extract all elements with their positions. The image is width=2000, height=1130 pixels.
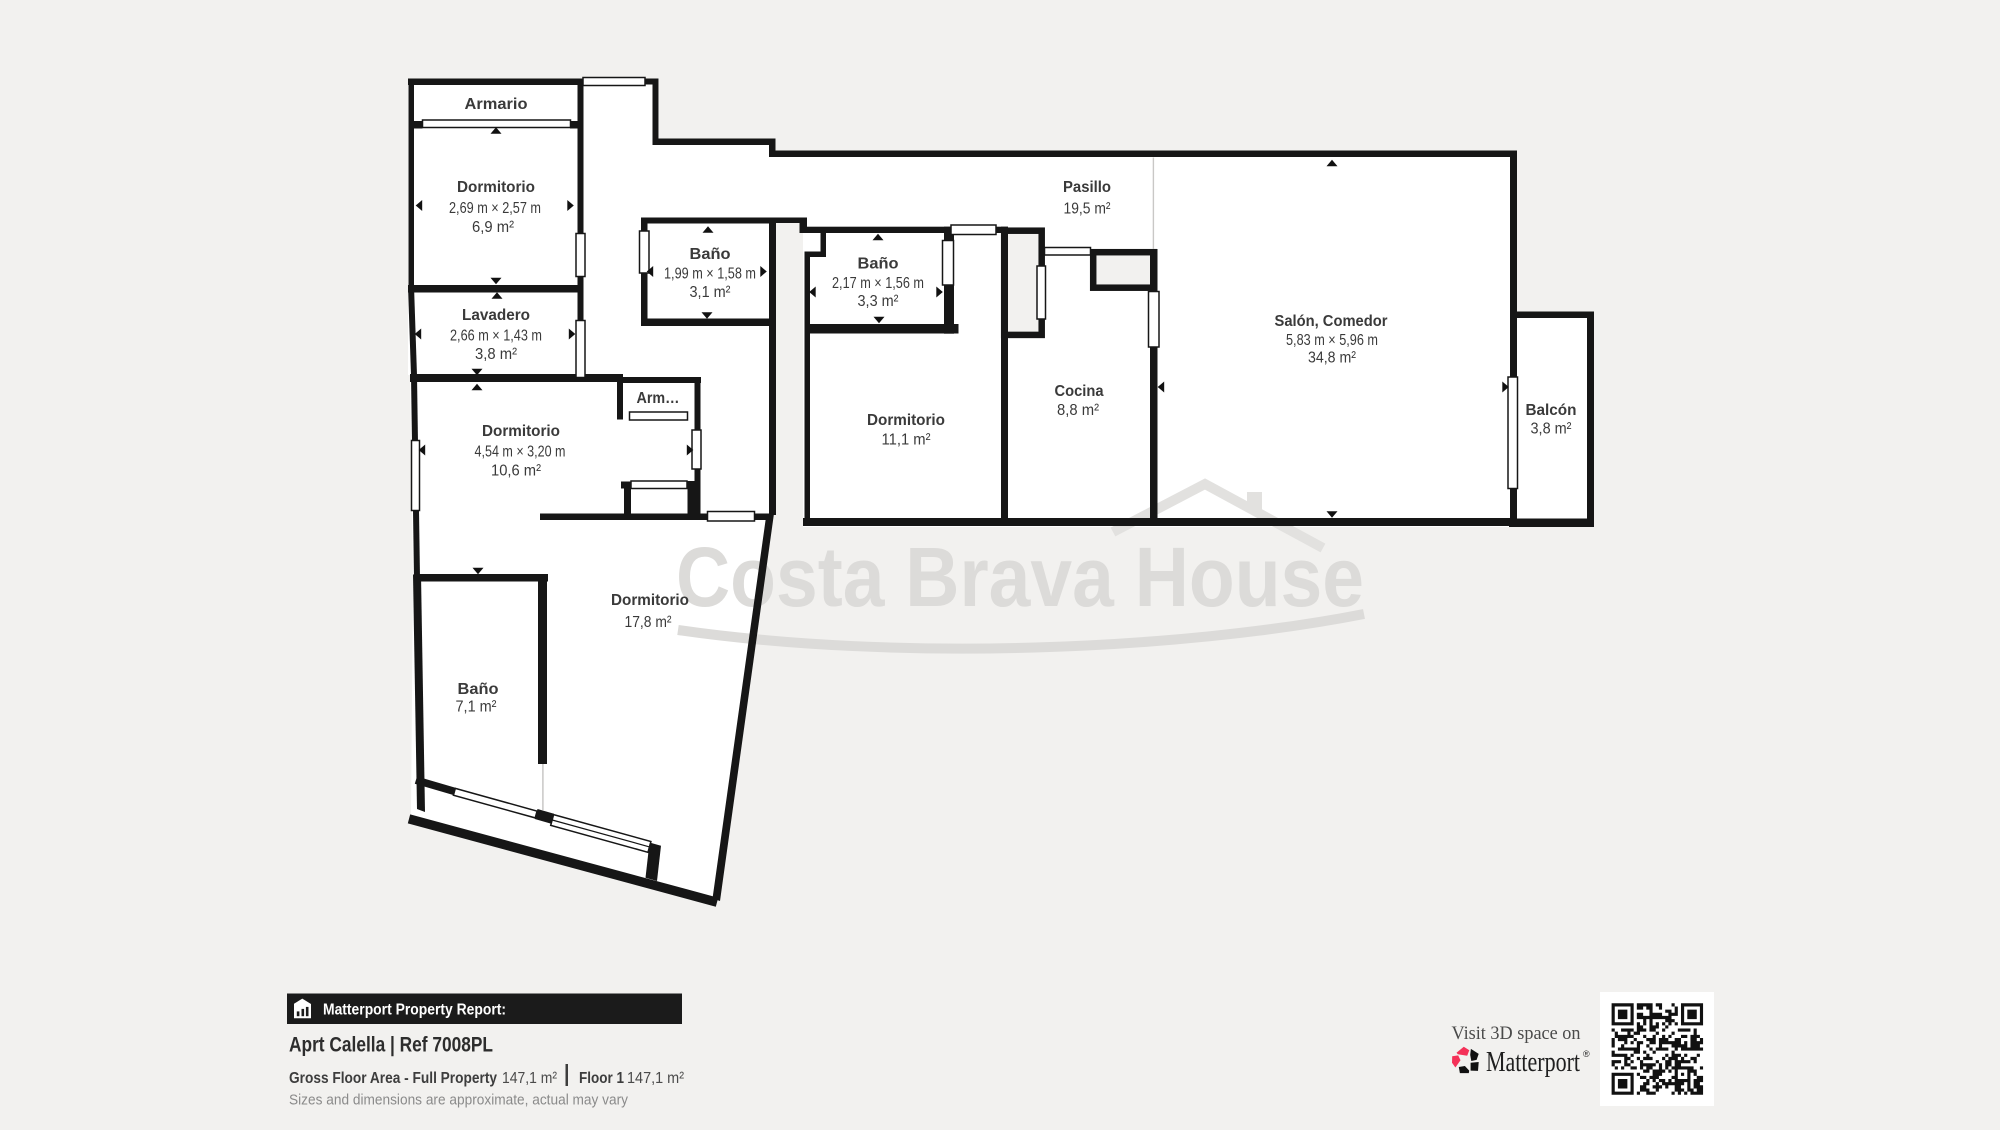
svg-text:Gross Floor Area - Full Proper: Gross Floor Area - Full Property	[289, 1070, 497, 1087]
svg-text:Salón, Comedor: Salón, Comedor	[1275, 313, 1388, 330]
svg-text:Dormitorio: Dormitorio	[611, 592, 689, 609]
svg-text:Arm…: Arm…	[637, 390, 680, 407]
svg-text:Lavadero: Lavadero	[462, 307, 530, 324]
svg-text:147,1 m²: 147,1 m²	[502, 1070, 558, 1087]
svg-text:3,1 m²: 3,1 m²	[690, 284, 732, 301]
svg-text:®: ®	[1583, 1049, 1590, 1059]
svg-text:10,6 m²: 10,6 m²	[491, 463, 542, 480]
svg-text:Visit 3D space on: Visit 3D space on	[1452, 1023, 1581, 1044]
svg-text:Pasillo: Pasillo	[1063, 179, 1111, 196]
svg-text:Cocina: Cocina	[1055, 383, 1104, 400]
svg-text:1,99 m × 1,58 m: 1,99 m × 1,58 m	[664, 266, 756, 283]
svg-text:2,66 m × 1,43 m: 2,66 m × 1,43 m	[450, 328, 542, 345]
svg-text:7,1 m²: 7,1 m²	[456, 699, 498, 716]
svg-text:Balcón: Balcón	[1526, 402, 1577, 419]
svg-text:Dormitorio: Dormitorio	[482, 423, 560, 440]
svg-text:17,8 m²: 17,8 m²	[625, 614, 673, 631]
svg-text:Dormitorio: Dormitorio	[867, 412, 945, 429]
svg-text:19,5 m²: 19,5 m²	[1064, 201, 1112, 218]
svg-text:Matterport: Matterport	[1486, 1047, 1580, 1078]
svg-text:8,8 m²: 8,8 m²	[1057, 402, 1100, 419]
svg-text:Costa Brava House: Costa Brava House	[676, 530, 1364, 624]
svg-text:5,83 m × 5,96 m: 5,83 m × 5,96 m	[1286, 332, 1378, 349]
svg-text:3,8 m²: 3,8 m²	[1531, 421, 1573, 438]
svg-text:Sizes and dimensions are appro: Sizes and dimensions are approximate, ac…	[289, 1093, 629, 1109]
svg-text:Baño: Baño	[458, 681, 499, 698]
svg-text:Aprt Calella | Ref 7008PL: Aprt Calella | Ref 7008PL	[289, 1033, 493, 1057]
svg-text:3,8 m²: 3,8 m²	[475, 346, 518, 363]
svg-text:Dormitorio: Dormitorio	[457, 179, 535, 196]
svg-text:Armario: Armario	[465, 96, 528, 113]
svg-text:11,1 m²: 11,1 m²	[882, 432, 932, 449]
svg-text:6,9 m²: 6,9 m²	[472, 219, 515, 236]
svg-text:147,1 m²: 147,1 m²	[627, 1070, 685, 1087]
svg-text:4,54 m × 3,20 m: 4,54 m × 3,20 m	[475, 444, 566, 461]
svg-text:34,8 m²: 34,8 m²	[1308, 350, 1357, 367]
svg-text:Baño: Baño	[858, 256, 899, 273]
svg-text:Floor 1: Floor 1	[579, 1070, 624, 1087]
svg-text:2,17 m × 1,56 m: 2,17 m × 1,56 m	[832, 275, 924, 292]
svg-text:Matterport Property Report:: Matterport Property Report:	[323, 1002, 506, 1019]
svg-text:2,69 m × 2,57 m: 2,69 m × 2,57 m	[449, 200, 541, 217]
svg-text:Baño: Baño	[690, 246, 731, 263]
svg-text:3,3 m²: 3,3 m²	[858, 293, 900, 310]
